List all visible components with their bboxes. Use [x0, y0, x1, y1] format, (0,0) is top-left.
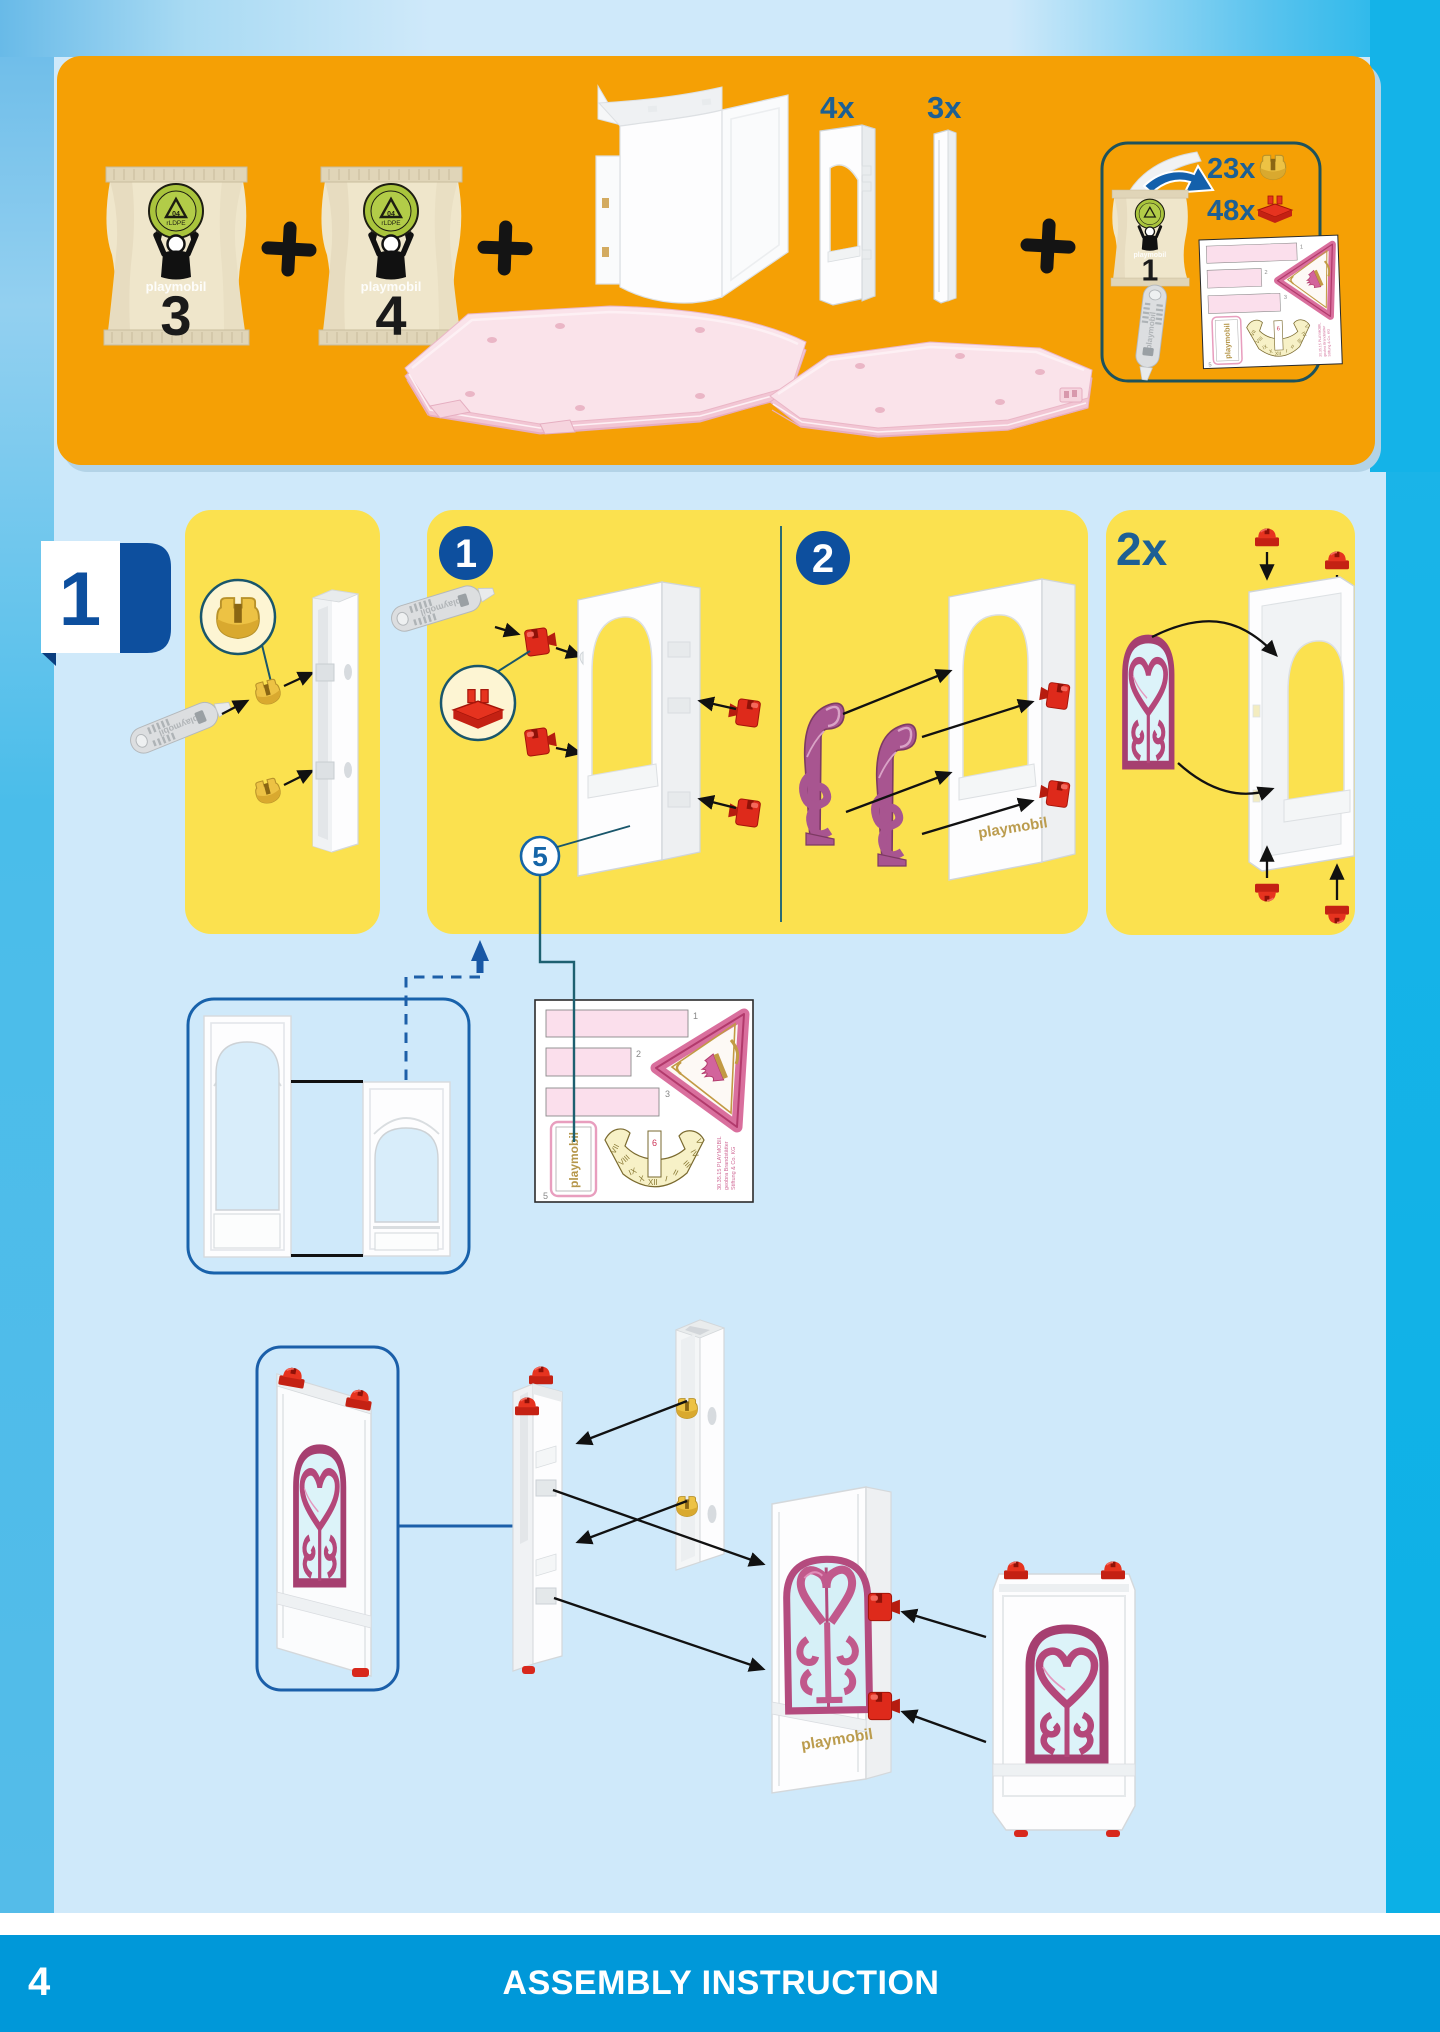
svg-text:1: 1 — [1141, 255, 1158, 288]
svg-text:1: 1 — [59, 557, 101, 642]
svg-text:3x: 3x — [927, 90, 962, 125]
svg-text:rLDPE: rLDPE — [166, 220, 186, 227]
svg-text:04: 04 — [387, 211, 395, 218]
svg-text:4: 4 — [375, 284, 406, 347]
svg-text:5: 5 — [532, 841, 548, 872]
svg-text:2: 2 — [812, 537, 834, 581]
svg-text:4x: 4x — [820, 90, 855, 125]
svg-text:48x: 48x — [1207, 195, 1255, 227]
svg-text:3: 3 — [160, 284, 191, 347]
svg-text:1: 1 — [455, 532, 477, 576]
svg-text:4: 4 — [28, 1960, 51, 2004]
svg-text:2x: 2x — [1116, 523, 1168, 575]
svg-text:rLDPE: rLDPE — [381, 220, 401, 227]
svg-text:04: 04 — [172, 211, 180, 218]
svg-text:ASSEMBLY INSTRUCTION: ASSEMBLY INSTRUCTION — [503, 1964, 940, 2002]
svg-text:23x: 23x — [1207, 153, 1255, 185]
